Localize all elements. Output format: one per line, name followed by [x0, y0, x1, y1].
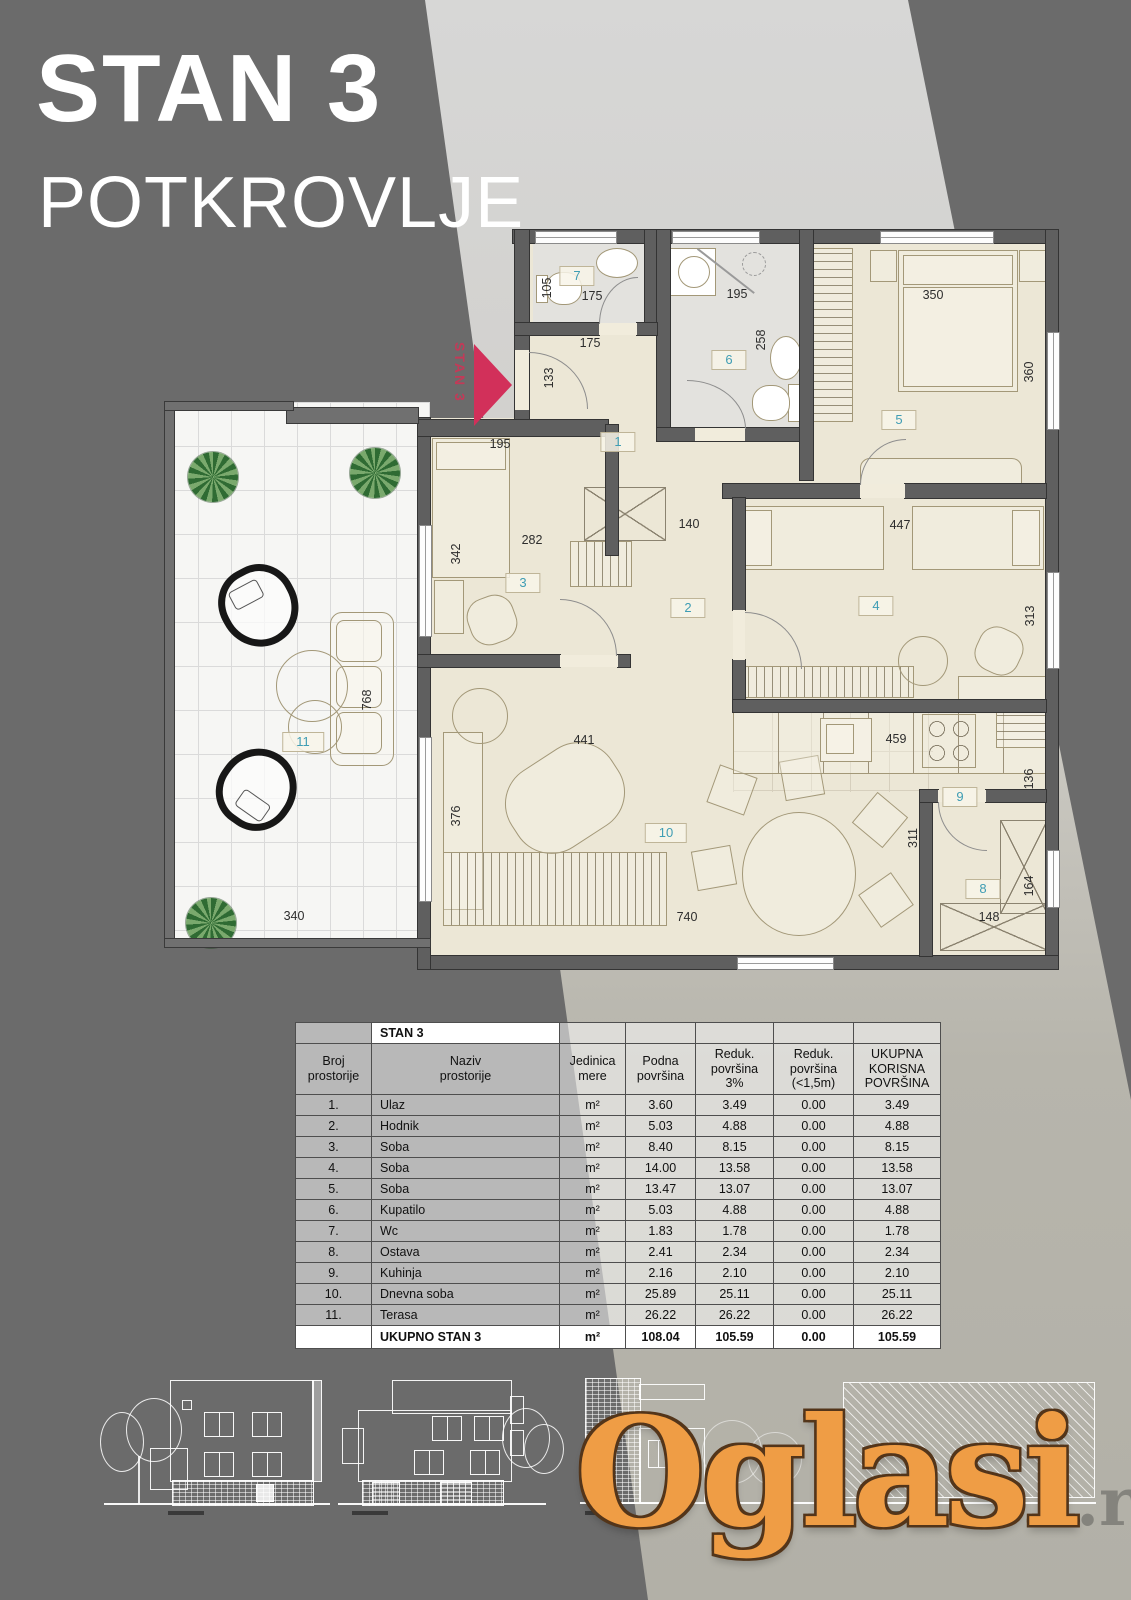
toilet: [752, 385, 790, 421]
plant: [350, 448, 400, 498]
window: [419, 525, 432, 637]
table-row: 3.Soba m²8.40 8.150.00 8.15: [296, 1137, 941, 1158]
dimension-label: 148: [979, 910, 1000, 924]
sink: [770, 336, 802, 380]
tree-sketch: [524, 1424, 564, 1474]
room-number-chip: 4: [858, 596, 893, 616]
wall-segment: [418, 655, 560, 667]
table-title: STAN 3: [372, 1023, 560, 1044]
dimension-label: 136: [1022, 769, 1036, 790]
plant: [188, 452, 238, 502]
window: [1047, 572, 1060, 669]
table-row: 11.Terasa m²26.22 26.220.00 26.22: [296, 1305, 941, 1326]
washing-machine-drum: [678, 256, 710, 288]
wall-segment: [618, 655, 630, 667]
wall-segment: [920, 790, 938, 802]
door-opening: [560, 655, 618, 667]
dimension-label: 441: [574, 733, 595, 747]
window: [432, 1416, 462, 1441]
sofa-cushion: [336, 620, 382, 662]
shower-head: [742, 252, 766, 276]
dimension-label: 311: [906, 828, 920, 848]
page-title: STAN 3: [36, 34, 382, 144]
dimension-label: 342: [449, 544, 463, 565]
table-title-row: STAN 3: [296, 1023, 941, 1044]
tree-trunk: [138, 1456, 140, 1504]
column-header: Jedinica mere: [560, 1044, 626, 1095]
table-row: 9.Kuhinja m²2.16 2.100.00 2.10: [296, 1263, 941, 1284]
hall-closet: [584, 487, 666, 541]
room-number-chip: 2: [670, 598, 705, 618]
sink: [596, 248, 638, 278]
dimension-label: 740: [677, 910, 698, 924]
building-outline: [170, 1380, 314, 1482]
terrace-door-window: [419, 737, 432, 902]
column-header: Broj prostorije: [296, 1044, 372, 1095]
wall-segment: [733, 700, 1046, 712]
room-number-chip: 5: [881, 410, 916, 430]
elevation-caption: [352, 1511, 388, 1515]
dimension-label: 133: [542, 368, 556, 389]
entrance-arrow-icon: [474, 344, 512, 426]
sofa-cushion: [336, 712, 382, 754]
dining-table: [742, 812, 856, 936]
dining-chair: [691, 845, 737, 891]
basement-door: [256, 1484, 274, 1502]
nightstand: [870, 250, 897, 282]
dimension-label: 350: [923, 288, 944, 302]
window: [252, 1412, 282, 1437]
door-opening: [515, 350, 529, 410]
logo-tld: .rs: [1076, 1463, 1131, 1541]
window: [672, 231, 760, 244]
room-number-chip: 3: [505, 573, 540, 593]
wardrobe: [740, 666, 914, 698]
wardrobe: [570, 541, 632, 587]
dimension-label: 447: [890, 518, 911, 532]
dimension-label: 140: [679, 517, 700, 531]
table-row: 7.Wc m²1.83 1.780.00 1.78: [296, 1221, 941, 1242]
column-header: Reduk. površina 3%: [696, 1044, 774, 1095]
table-header-row: Broj prostorije Naziv prostorije Jedinic…: [296, 1044, 941, 1095]
desk: [958, 676, 1046, 700]
column-header: Reduk. površina (<1,5m): [774, 1044, 854, 1095]
table-total-row: UKUPNO STAN 3 m² 108.04 105.59 0.00 105.…: [296, 1326, 941, 1349]
bed-pillow: [1012, 510, 1040, 566]
wall-segment: [905, 484, 1046, 498]
window: [474, 1416, 504, 1441]
wall-segment: [723, 484, 860, 498]
window: [414, 1450, 444, 1475]
dimension-label: 175: [580, 336, 601, 350]
room-number-chip: 8: [965, 879, 1000, 899]
room-number-chip: 7: [559, 266, 594, 286]
room-number-chip: 11: [282, 732, 324, 752]
vent-window: [182, 1400, 192, 1410]
stove: [922, 714, 976, 768]
ground-line: [338, 1503, 546, 1505]
ground-line: [104, 1503, 330, 1505]
terrace-parapet: [165, 402, 293, 410]
table-row: 5.Soba m²13.47 13.070.00 13.07: [296, 1179, 941, 1200]
door-opening: [733, 610, 745, 660]
sofa: [443, 852, 667, 926]
table-row: 1.Ulaz m²3.60 3.490.00 3.49: [296, 1095, 941, 1116]
kitchen-sink-basin: [826, 724, 854, 754]
window: [1047, 850, 1060, 908]
kitchen-shelf: [996, 712, 1048, 748]
wall-segment: [800, 230, 813, 480]
dimension-label: 459: [886, 732, 907, 746]
building-outline: [392, 1380, 512, 1414]
room-number-chip: 1: [600, 432, 635, 452]
garage-door: [440, 1482, 472, 1505]
table-row: 2.Hodnik m²5.03 4.880.00 4.88: [296, 1116, 941, 1137]
door-opening: [695, 428, 745, 441]
dimension-label: 282: [522, 533, 543, 547]
watermark-logo: Oglasi.rs: [575, 1398, 1131, 1548]
bed-blanket: [903, 287, 1013, 387]
wall-segment: [733, 498, 745, 610]
building-annex: [342, 1428, 364, 1464]
desk: [434, 580, 464, 634]
terrace-parapet: [165, 939, 430, 947]
terrace-parapet: [165, 402, 174, 947]
wall-segment: [986, 790, 1046, 802]
window: [204, 1412, 234, 1437]
window: [737, 957, 834, 970]
area-table: STAN 3 Broj prostorije Naziv prostorije …: [295, 1022, 941, 1349]
wall-segment: [920, 790, 932, 956]
window: [880, 231, 994, 244]
window: [535, 231, 617, 244]
bed-pillow: [744, 510, 772, 566]
dimension-label: 376: [449, 806, 463, 827]
dimension-label: 164: [1022, 876, 1036, 897]
room-number-chip: 10: [645, 823, 687, 843]
bed-pillow: [903, 255, 1013, 285]
dimension-label: 340: [284, 909, 305, 923]
window: [1047, 332, 1060, 430]
room-number-chip: 6: [711, 350, 746, 370]
table-row: 6.Kupatilo m²5.03 4.880.00 4.88: [296, 1200, 941, 1221]
wall-segment: [637, 323, 657, 335]
dimension-label: 313: [1023, 606, 1037, 627]
table-row: 10.Dnevna soba m²25.89 25.110.00 25.11: [296, 1284, 941, 1305]
dimension-label: 360: [1022, 362, 1036, 383]
dimension-label: 195: [490, 437, 511, 451]
dimension-label: 105: [540, 278, 554, 299]
wall-segment: [418, 420, 608, 436]
door-opening: [599, 323, 637, 335]
wall-segment: [287, 408, 418, 423]
total-label: UKUPNO STAN 3: [372, 1326, 560, 1349]
table-row: 8.Ostava m²2.41 2.340.00 2.34: [296, 1242, 941, 1263]
column-header: Naziv prostorije: [372, 1044, 560, 1095]
edge-strip: [312, 1380, 322, 1482]
window: [470, 1450, 500, 1475]
door-opening: [860, 484, 905, 498]
table-cell: [296, 1023, 372, 1044]
column-header: UKUPNA KORISNA POVRŠINA: [854, 1044, 941, 1095]
column-header: Podna površina: [626, 1044, 696, 1095]
storage-cabinet: [1000, 820, 1048, 914]
flyer-page: STAN 3 POTKROVLJE: [0, 0, 1131, 1600]
room-number-chip: 9: [942, 787, 977, 807]
garage-door: [372, 1482, 400, 1505]
entrance-marker-label: STAN 3: [452, 342, 468, 430]
page-subtitle: POTKROVLJE: [38, 162, 524, 244]
dimension-label: 195: [727, 287, 748, 301]
nightstand: [1019, 250, 1046, 282]
gym-ball: [898, 636, 948, 686]
logo-text: Oglasi: [575, 1385, 1076, 1561]
dimension-label: 768: [360, 690, 374, 711]
dimension-label: 175: [582, 289, 603, 303]
table-row: 4.Soba m²14.00 13.580.00 13.58: [296, 1158, 941, 1179]
pouf: [452, 688, 508, 744]
dimension-label: 258: [754, 330, 768, 351]
window: [252, 1452, 282, 1477]
elevation-caption: [168, 1511, 204, 1515]
window: [204, 1452, 234, 1477]
wall-segment: [657, 230, 670, 441]
wall-segment: [515, 323, 599, 335]
